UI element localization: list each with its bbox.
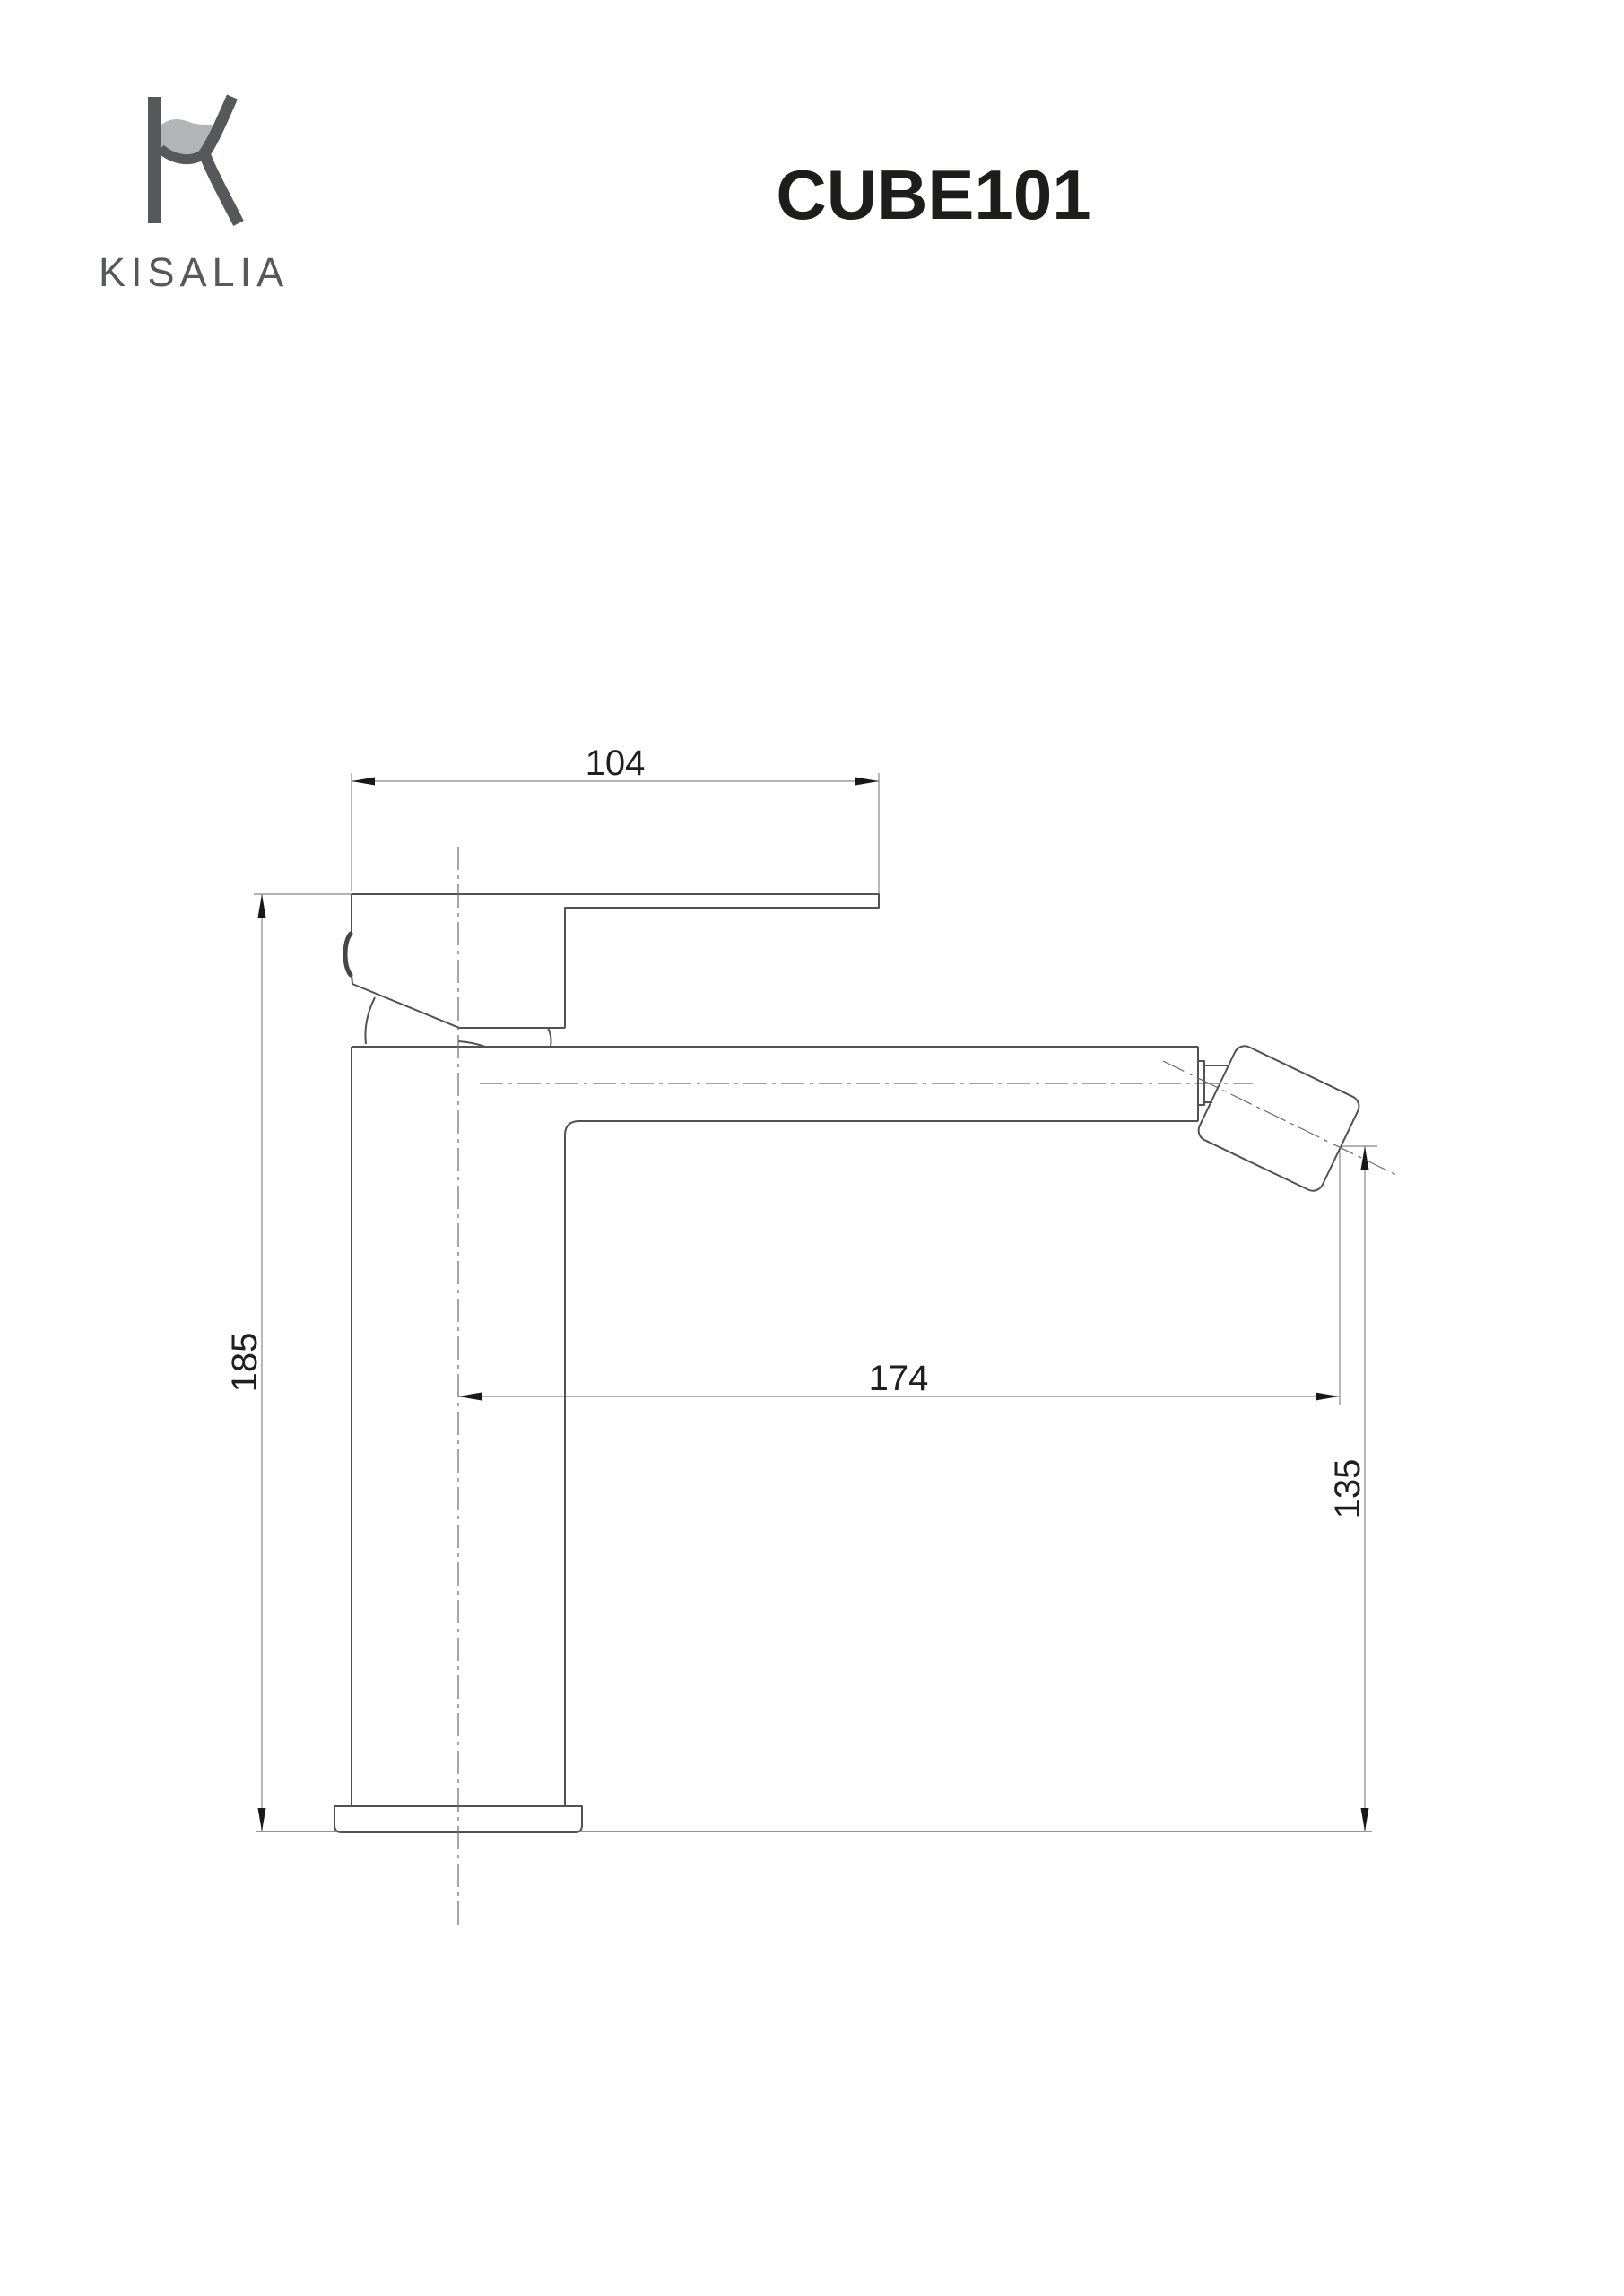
faucet-outline [334,894,1362,1832]
dim-label-outlet-height: 135 [1328,1459,1368,1519]
lever-end-cap [345,934,351,975]
dim-label-handle-length: 104 [586,744,646,783]
dimension-labels: 104 185 174 135 [225,744,1368,1518]
technical-drawing: 104 185 174 135 [0,0,1624,2296]
dome-arc-left [365,997,375,1044]
dim-label-total-height: 185 [225,1333,265,1393]
dim-label-spout-reach: 174 [869,1359,929,1398]
lever-handle [352,894,879,1028]
neck-arc-right [548,1028,551,1047]
spout-bottom-edge [565,1121,1198,1135]
dimension-lines [254,773,1377,1831]
